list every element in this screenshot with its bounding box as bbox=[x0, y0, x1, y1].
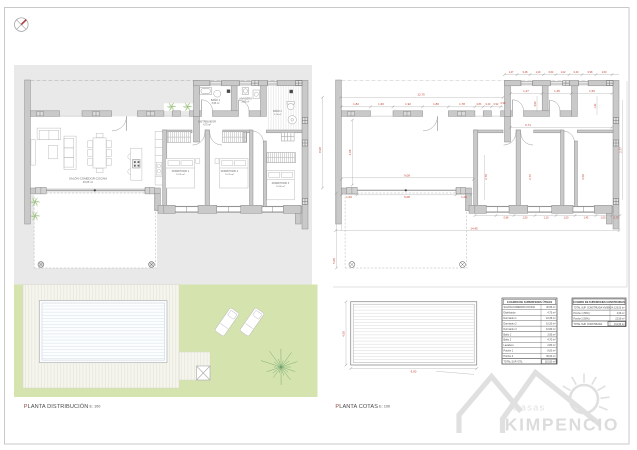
svg-text:0,98: 0,98 bbox=[504, 216, 509, 219]
svg-text:0,83: 0,83 bbox=[477, 103, 482, 106]
svg-text:9,00: 9,00 bbox=[411, 369, 417, 373]
svg-text:125,00 m²: 125,00 m² bbox=[614, 307, 625, 310]
svg-text:1,47: 1,47 bbox=[523, 89, 529, 93]
svg-text:1,82: 1,82 bbox=[353, 102, 359, 106]
svg-text:4,75 m²: 4,75 m² bbox=[203, 123, 211, 126]
svg-text:2,76: 2,76 bbox=[528, 174, 532, 180]
svg-text:1,50: 1,50 bbox=[589, 89, 595, 93]
svg-text:8,98: 8,98 bbox=[318, 147, 322, 153]
svg-text:DORMITORIO 1: DORMITORIO 1 bbox=[172, 170, 190, 173]
svg-text:DORMITORIO 2: DORMITORIO 2 bbox=[221, 170, 239, 173]
svg-text:8,00 m²: 8,00 m² bbox=[547, 350, 555, 353]
svg-text:1,00: 1,00 bbox=[461, 195, 467, 199]
svg-text:4,50: 4,50 bbox=[342, 331, 346, 337]
svg-text:Lavadero: Lavadero bbox=[504, 344, 515, 347]
svg-text:Distribuidor: Distribuidor bbox=[504, 312, 516, 315]
svg-text:Casas: Casas bbox=[513, 403, 546, 414]
svg-text:1,10: 1,10 bbox=[544, 216, 549, 219]
svg-text:0,64: 0,64 bbox=[549, 71, 554, 74]
svg-text:4,75 m²: 4,75 m² bbox=[547, 312, 555, 315]
svg-text:1,27: 1,27 bbox=[509, 71, 514, 74]
svg-text:Dormitorio 1: Dormitorio 1 bbox=[504, 317, 518, 320]
svg-text:Porche 1: Porche 1 bbox=[504, 350, 514, 353]
svg-text:1,60: 1,60 bbox=[602, 71, 607, 74]
svg-text:LAVADERO: LAVADERO bbox=[239, 97, 252, 100]
svg-text:4,70 m²: 4,70 m² bbox=[274, 113, 282, 116]
svg-text:2,80 m²: 2,80 m² bbox=[547, 344, 555, 347]
svg-text:0,98: 0,98 bbox=[588, 71, 593, 74]
svg-text:151,50 m²: 151,50 m² bbox=[614, 323, 625, 326]
svg-text:1,00: 1,00 bbox=[346, 195, 352, 199]
svg-text:10,20 m²: 10,20 m² bbox=[546, 323, 556, 326]
svg-text:Dormitorio 3: Dormitorio 3 bbox=[504, 328, 518, 331]
svg-text:Porche 1 (50%): Porche 1 (50%) bbox=[574, 312, 590, 315]
svg-text:0,40: 0,40 bbox=[486, 103, 491, 106]
svg-text:1,02: 1,02 bbox=[594, 103, 597, 108]
svg-text:14,45: 14,45 bbox=[470, 226, 478, 230]
svg-text:TOTAL SUP. ÚTIL: TOTAL SUP. ÚTIL bbox=[504, 360, 524, 363]
svg-text:3,60: 3,60 bbox=[581, 174, 585, 180]
svg-text:SALÓN-COMEDOR-COCINA: SALÓN-COMEDOR-COCINA bbox=[504, 306, 536, 309]
svg-text:9,08: 9,08 bbox=[404, 174, 410, 178]
svg-text:3,95 m²: 3,95 m² bbox=[547, 333, 555, 336]
svg-text:1,80: 1,80 bbox=[433, 102, 439, 106]
svg-text:Porche 2: Porche 2 bbox=[504, 355, 514, 358]
svg-text:1,60: 1,60 bbox=[378, 102, 384, 106]
svg-text:1,45: 1,45 bbox=[584, 216, 589, 219]
svg-text:5,00: 5,00 bbox=[332, 258, 336, 264]
svg-text:1,50: 1,50 bbox=[523, 216, 528, 219]
svg-text:1,00: 1,00 bbox=[564, 216, 569, 219]
svg-text:10,80 m²: 10,80 m² bbox=[276, 185, 285, 188]
svg-text:6,71: 6,71 bbox=[525, 123, 531, 127]
svg-text:DISTRIBUIDOR: DISTRIBUIDOR bbox=[198, 120, 216, 123]
svg-text:BAÑO 2: BAÑO 2 bbox=[273, 110, 282, 113]
svg-text:10,35 m²: 10,35 m² bbox=[546, 317, 556, 320]
svg-text:BAÑO 1: BAÑO 1 bbox=[211, 99, 221, 102]
svg-text:2,77: 2,77 bbox=[619, 147, 623, 153]
svg-text:1,92: 1,92 bbox=[405, 102, 411, 106]
svg-text:Dormitorio 2: Dormitorio 2 bbox=[504, 323, 518, 326]
svg-text:10,80 m²: 10,80 m² bbox=[546, 328, 556, 331]
svg-text:0,70: 0,70 bbox=[614, 216, 619, 219]
svg-text:22,50 m²: 22,50 m² bbox=[615, 317, 624, 320]
svg-text:3,95 m²: 3,95 m² bbox=[212, 102, 220, 105]
svg-text:1,02: 1,02 bbox=[561, 71, 566, 74]
svg-text:2,70: 2,70 bbox=[484, 174, 488, 180]
svg-text:110,50 m²: 110,50 m² bbox=[545, 360, 556, 363]
svg-text:TOTAL SUP. CONSTRUIDA: TOTAL SUP. CONSTRUIDA bbox=[574, 323, 603, 326]
svg-text:1,78: 1,78 bbox=[459, 102, 465, 106]
svg-text:4,98: 4,98 bbox=[348, 149, 352, 155]
svg-text:4,00 m²: 4,00 m² bbox=[617, 312, 625, 315]
svg-text:1,45: 1,45 bbox=[554, 89, 560, 93]
svg-text:TOTAL SUP. CONSTRUIDA VIVIENDA: TOTAL SUP. CONSTRUIDA VIVIENDA bbox=[574, 307, 614, 310]
svg-text:0,48: 0,48 bbox=[523, 71, 528, 74]
svg-text:40,65 m²: 40,65 m² bbox=[83, 180, 93, 184]
svg-text:1,20: 1,20 bbox=[536, 71, 541, 74]
svg-text:45,00 m²: 45,00 m² bbox=[546, 355, 556, 358]
svg-text:2,80 m²: 2,80 m² bbox=[242, 100, 250, 103]
svg-text:CUADRO DE SUPERFICIES CONSTRUI: CUADRO DE SUPERFICIES CONSTRUIDAS bbox=[573, 301, 625, 304]
svg-text:1,00: 1,00 bbox=[601, 216, 606, 219]
svg-text:0,98: 0,98 bbox=[501, 102, 506, 105]
svg-text:DORMITORIO 3: DORMITORIO 3 bbox=[272, 182, 290, 185]
svg-text:40,65 m²: 40,65 m² bbox=[546, 306, 556, 309]
svg-text:SALÓN-COMEDOR-COCINA: SALÓN-COMEDOR-COCINA bbox=[69, 176, 107, 181]
svg-text:Baño 1: Baño 1 bbox=[504, 333, 512, 336]
svg-text:10,20 m²: 10,20 m² bbox=[225, 173, 234, 176]
svg-text:10,35 m²: 10,35 m² bbox=[176, 173, 185, 176]
svg-text:12,70: 12,70 bbox=[417, 93, 425, 97]
svg-text:Porche 2 (50%): Porche 2 (50%) bbox=[574, 317, 590, 320]
svg-text:0,90: 0,90 bbox=[534, 101, 537, 106]
svg-text:Baño 2: Baño 2 bbox=[504, 339, 512, 342]
svg-text:KIMPENCIO: KIMPENCIO bbox=[505, 415, 619, 435]
svg-text:0,92: 0,92 bbox=[494, 103, 499, 106]
svg-text:4,70 m²: 4,70 m² bbox=[547, 339, 555, 342]
svg-text:5,08: 5,08 bbox=[404, 195, 410, 199]
svg-text:0,40: 0,40 bbox=[574, 71, 579, 74]
